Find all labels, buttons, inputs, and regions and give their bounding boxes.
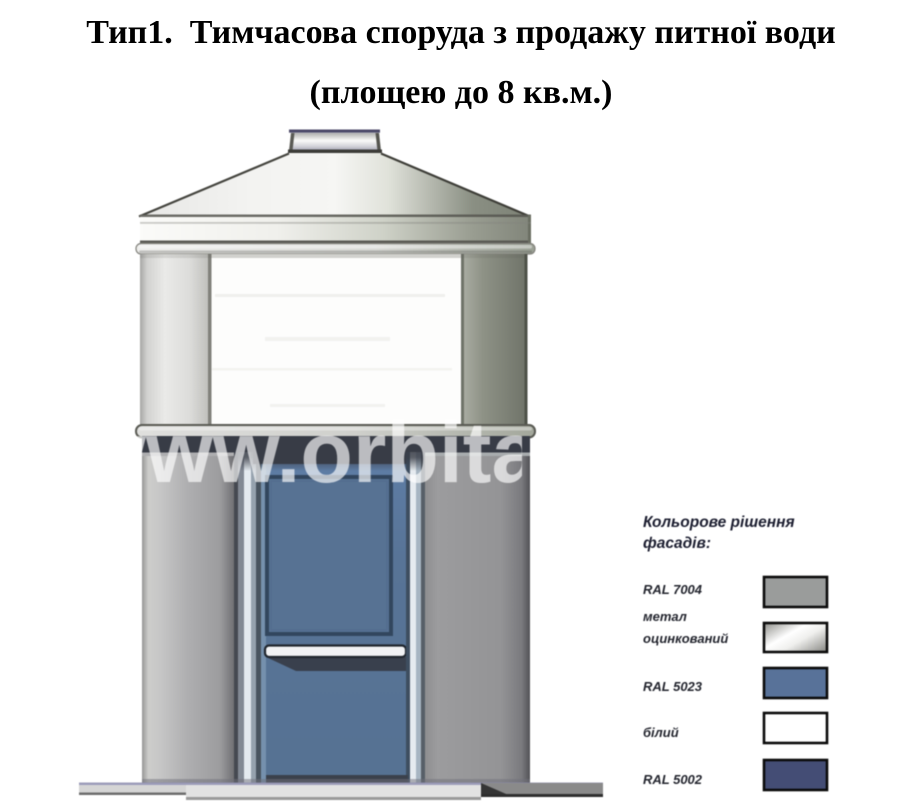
svg-text:метал: метал <box>643 609 687 624</box>
svg-text:фасадів:: фасадів: <box>643 535 711 552</box>
svg-text:Кольорове рішення: Кольорове рішення <box>643 514 795 531</box>
svg-text:RAL 5002: RAL 5002 <box>643 772 703 787</box>
svg-text:RAL 7004: RAL 7004 <box>643 582 703 597</box>
svg-text:RAL 5023: RAL 5023 <box>643 679 703 694</box>
svg-text:білий: білий <box>643 725 679 740</box>
svg-text:оцинкований: оцинкований <box>643 631 728 646</box>
svg-text:www.orbita: www.orbita <box>78 405 540 501</box>
